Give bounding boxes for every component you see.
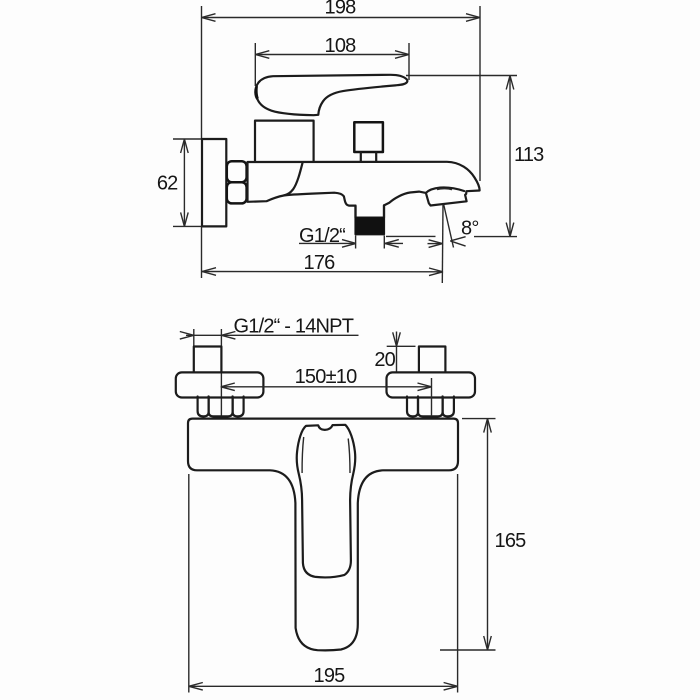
svg-text:176: 176 [304, 252, 336, 274]
svg-text:108: 108 [325, 35, 357, 57]
svg-text:G1/2“ - 14NPT: G1/2“ - 14NPT [234, 316, 354, 338]
svg-text:8°: 8° [461, 218, 479, 240]
svg-text:165: 165 [495, 530, 527, 552]
svg-text:198: 198 [325, 0, 357, 19]
svg-text:20: 20 [374, 349, 395, 371]
svg-text:195: 195 [314, 665, 346, 687]
svg-text:150±10: 150±10 [295, 366, 357, 388]
svg-text:113: 113 [514, 144, 544, 166]
svg-text:62: 62 [157, 173, 178, 195]
